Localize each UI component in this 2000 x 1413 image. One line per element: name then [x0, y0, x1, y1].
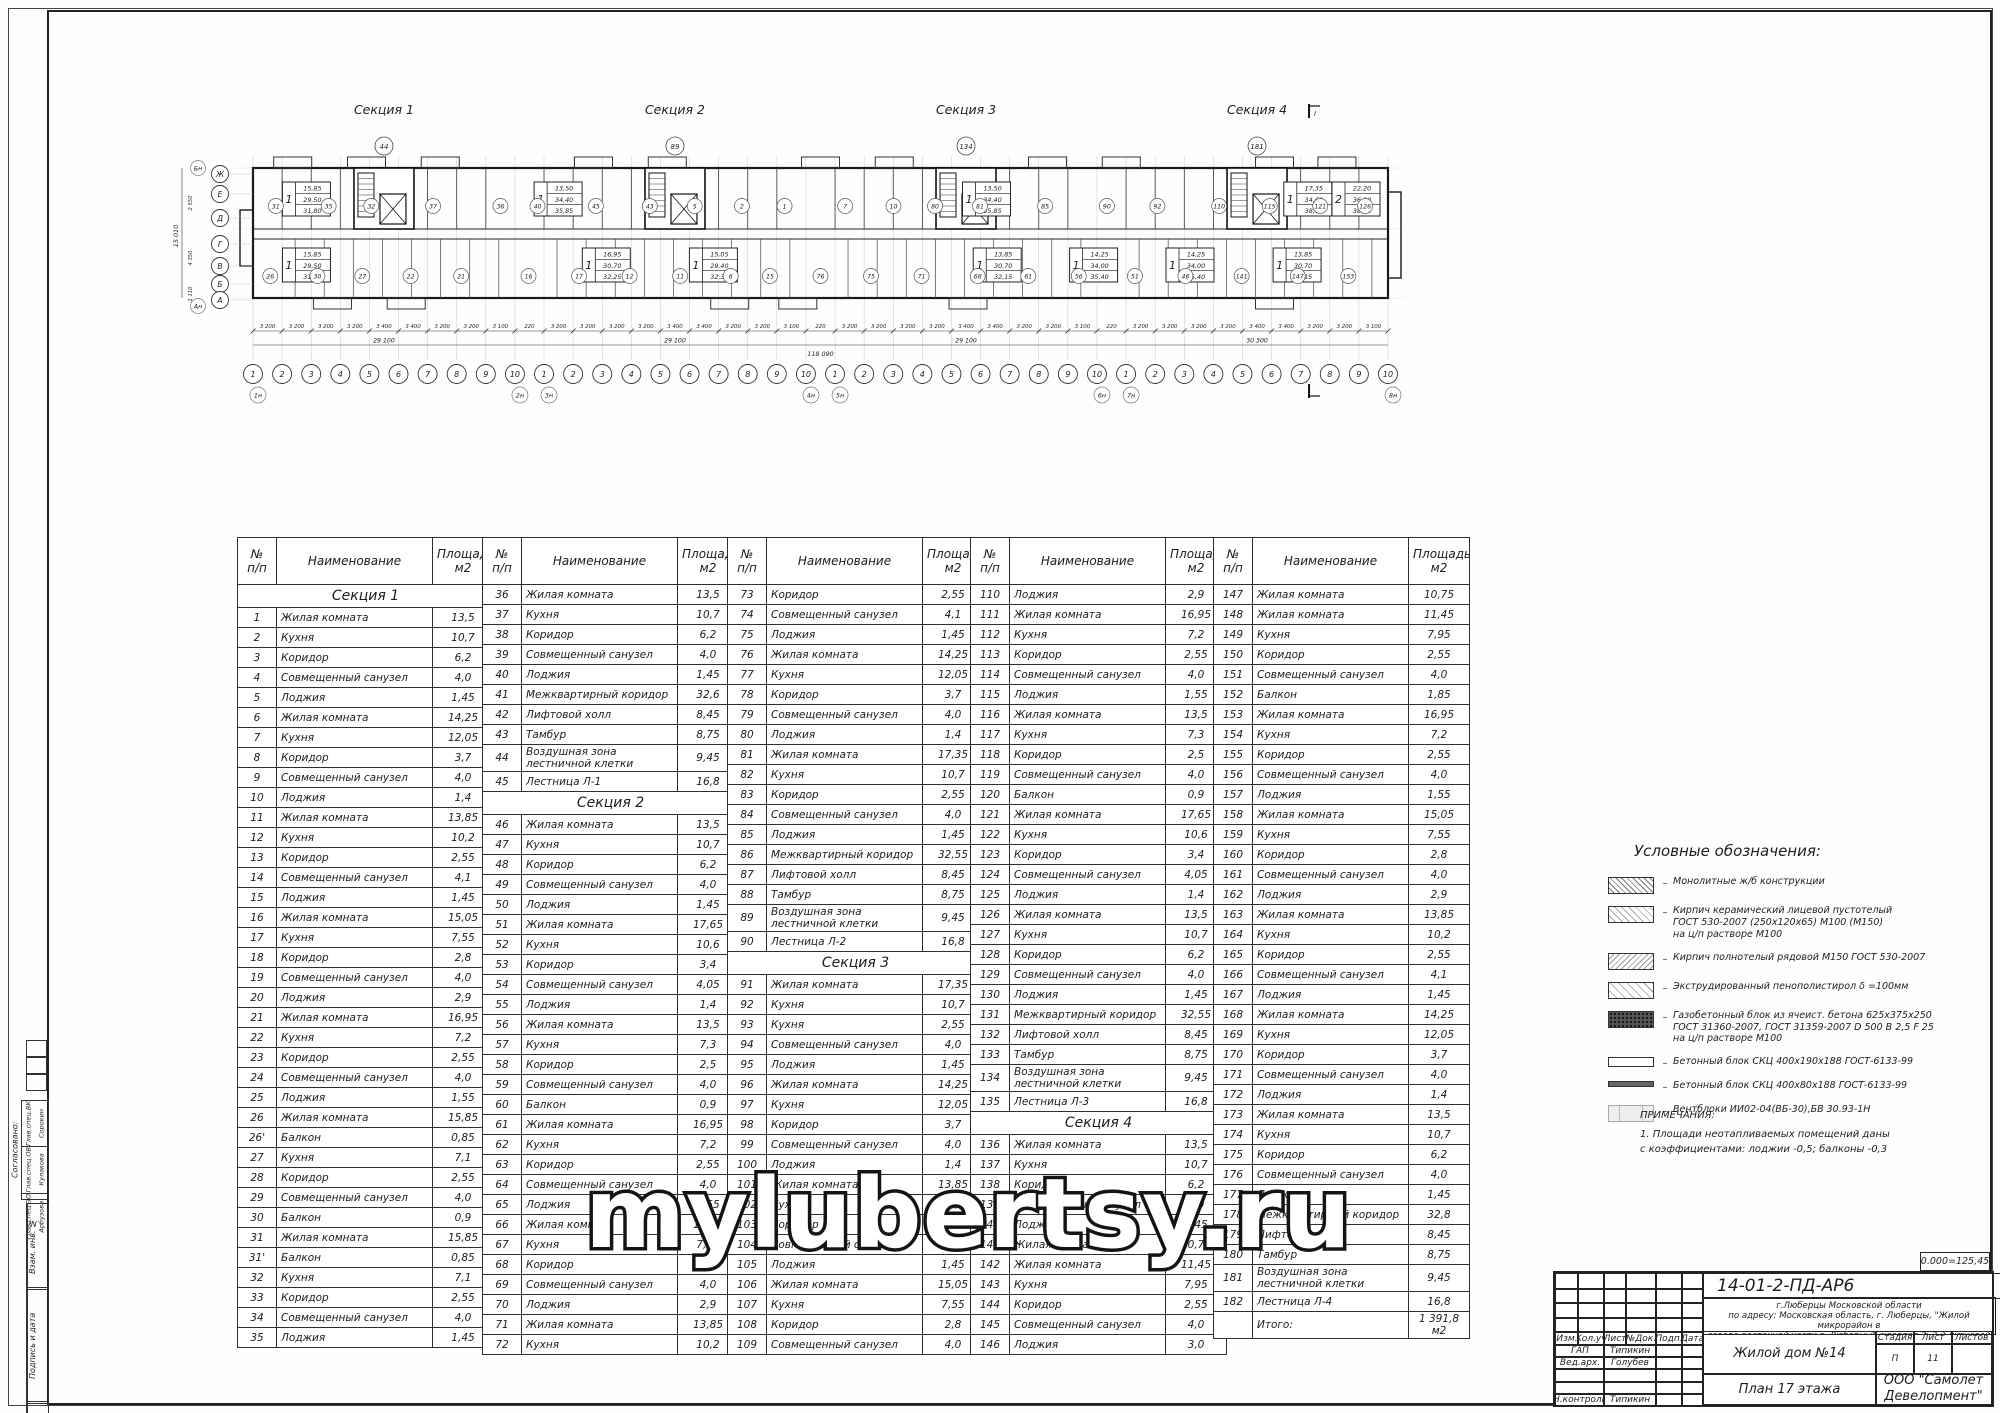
legend-title: Условные обозначения: — [1634, 842, 1978, 860]
table-row: 159Кухня7,55 — [1214, 825, 1470, 845]
table-row: 63Коридор2,55 — [483, 1155, 739, 1175]
svg-text:5н: 5н — [836, 392, 844, 400]
room-area: 1,55 — [1409, 785, 1470, 805]
table-row: 125Лоджия1,4 — [971, 885, 1227, 905]
room-name: Воздушная зона лестничной клетки — [522, 745, 678, 772]
row-number: 69 — [483, 1275, 522, 1295]
table-row: 37Кухня10,7 — [483, 605, 739, 625]
table-row: 69Совмещенный санузел4,0 — [483, 1275, 739, 1295]
room-name: Лоджия — [1010, 985, 1166, 1005]
room-name: Коридор — [277, 848, 433, 868]
room-name: Совмещенный санузел — [767, 1035, 923, 1055]
agree-entry: Глав.спец.ВК — [22, 1101, 35, 1146]
table-row: 43Тамбур8,75 — [483, 725, 739, 745]
row-number: 113 — [971, 645, 1010, 665]
svg-text:8: 8 — [1036, 370, 1041, 379]
svg-text:29,40: 29,40 — [710, 262, 728, 270]
room-name: Жилая комната — [1010, 605, 1166, 625]
svg-text:3 200: 3 200 — [1133, 324, 1149, 330]
row-number: 136 — [971, 1135, 1010, 1155]
svg-text:66: 66 — [974, 274, 982, 281]
svg-text:115: 115 — [1264, 204, 1276, 211]
svg-text:51: 51 — [1131, 274, 1139, 281]
svg-text:3 400: 3 400 — [696, 324, 712, 330]
row-number: 127 — [971, 925, 1010, 945]
table-row: 6Жилая комната14,25 — [238, 708, 494, 728]
agree-entry: Глав.спец.ОВ — [22, 1147, 35, 1193]
svg-text:3 100: 3 100 — [1075, 324, 1091, 330]
svg-text:3 200: 3 200 — [871, 324, 887, 330]
svg-text:56: 56 — [1075, 274, 1083, 281]
svg-text:7: 7 — [716, 370, 722, 379]
row-number: 27 — [238, 1148, 277, 1168]
table-header: Площадь, м2 — [1409, 538, 1470, 585]
room-name: Лоджия — [1010, 685, 1166, 705]
table-row: 157Лоджия1,55 — [1214, 785, 1470, 805]
table-row: 137Кухня10,7 — [971, 1155, 1227, 1175]
legend-item: –Бетонный блок СКЦ 400х190х188 ГОСТ-6133… — [1608, 1056, 1978, 1069]
table-row: 154Кухня7,2 — [1214, 725, 1470, 745]
svg-text:3: 3 — [309, 370, 314, 379]
room-name: Жилая комната — [767, 1175, 923, 1195]
room-name: Совмещенный санузел — [1253, 865, 1409, 885]
room-name: Совмещенный санузел — [1253, 965, 1409, 985]
svg-text:Секция 4: Секция 4 — [1227, 102, 1287, 117]
row-number: 71 — [483, 1315, 522, 1335]
agree-label: Согласовано: — [9, 1100, 21, 1200]
table-row: 99Совмещенный санузел4,0 — [728, 1135, 984, 1155]
row-number: 53 — [483, 955, 522, 975]
table-row: 124Совмещенный санузел4,05 — [971, 865, 1227, 885]
row-number: 121 — [971, 805, 1010, 825]
svg-text:8: 8 — [454, 370, 459, 379]
room-name: Итого: — [1253, 1312, 1409, 1339]
room-name: Коридор — [277, 948, 433, 968]
table-row: Секция 3 — [728, 952, 984, 975]
table-row: 60Балкон0,9 — [483, 1095, 739, 1115]
table-row: 83Коридор2,55 — [728, 785, 984, 805]
row-number: 153 — [1214, 705, 1253, 725]
svg-text:15: 15 — [766, 274, 774, 281]
row-number: 112 — [971, 625, 1010, 645]
table-row: 167Лоджия1,45 — [1214, 985, 1470, 1005]
svg-text:3 200: 3 200 — [464, 324, 480, 330]
svg-text:31,80: 31,80 — [303, 207, 321, 215]
svg-text:3 200: 3 200 — [842, 324, 858, 330]
room-area: 2,55 — [1409, 945, 1470, 965]
room-area: 7,95 — [1409, 625, 1470, 645]
svg-text:4: 4 — [629, 370, 634, 379]
row-number: 70 — [483, 1295, 522, 1315]
row-number: 62 — [483, 1135, 522, 1155]
room-name: Лифтовой холл — [767, 865, 923, 885]
room-area: 2,55 — [1409, 745, 1470, 765]
row-number: 102 — [728, 1195, 767, 1215]
table-row: 172Лоджия1,4 — [1214, 1085, 1470, 1105]
legend-text: Бетонный блок СКЦ 400х80х188 ГОСТ-6133-9… — [1673, 1080, 1907, 1092]
table-row: 131Межквартирный коридор32,55 — [971, 1005, 1227, 1025]
row-number: 100 — [728, 1155, 767, 1175]
table-row: 48Коридор6,2 — [483, 855, 739, 875]
svg-text:1: 1 — [1124, 370, 1129, 379]
row-number: 174 — [1214, 1125, 1253, 1145]
table-row: 155Коридор2,55 — [1214, 745, 1470, 765]
table-row: 19Совмещенный санузел4,0 — [238, 968, 494, 988]
room-name: Жилая комната — [767, 645, 923, 665]
room-name: Лоджия — [277, 888, 433, 908]
row-number: 77 — [728, 665, 767, 685]
svg-text:14,25: 14,25 — [1090, 251, 1108, 259]
table-row: 149Кухня7,95 — [1214, 625, 1470, 645]
room-name: Лоджия — [522, 895, 678, 915]
area-table-3: № п/пНаименованиеПлощадь, м273Коридор2,5… — [727, 537, 984, 1355]
room-name: Совмещенный санузел — [277, 868, 433, 888]
row-number: 32 — [238, 1268, 277, 1288]
table-row: 62Кухня7,2 — [483, 1135, 739, 1155]
room-name: Кухня — [1253, 1025, 1409, 1045]
svg-text:3 200: 3 200 — [1191, 324, 1207, 330]
room-name: Коридор — [1010, 1295, 1166, 1315]
table-row: 165Коридор2,55 — [1214, 945, 1470, 965]
room-name: Кухня — [1010, 625, 1166, 645]
table-row: 57Кухня7,3 — [483, 1035, 739, 1055]
table-row: 89Воздушная зона лестничной клетки9,45 — [728, 905, 984, 932]
legend-item: –Монолитные ж/б конструкции — [1608, 876, 1978, 894]
table-row: 133Тамбур8,75 — [971, 1045, 1227, 1065]
room-area: 1,4 — [1409, 1085, 1470, 1105]
svg-text:2: 2 — [862, 370, 867, 379]
svg-text:3 200: 3 200 — [929, 324, 945, 330]
room-name: Жилая комната — [1010, 1235, 1166, 1255]
svg-text:35,85: 35,85 — [555, 207, 573, 215]
svg-text:3 200: 3 200 — [1220, 324, 1236, 330]
table-row: 27Кухня7,1 — [238, 1148, 494, 1168]
stage-value — [1951, 1343, 1992, 1375]
svg-text:22,20: 22,20 — [1353, 185, 1371, 193]
room-name: Кухня — [767, 665, 923, 685]
table-row: 109Совмещенный санузел4,0 — [728, 1335, 984, 1355]
table-row: 26'Балкон0,85 — [238, 1128, 494, 1148]
svg-text:16: 16 — [525, 274, 533, 281]
row-number: 140 — [971, 1215, 1010, 1235]
room-name: Совмещенный санузел — [1010, 1195, 1166, 1215]
table-row: 98Коридор3,7 — [728, 1115, 984, 1135]
area-table-1: № п/пНаименованиеПлощадь, м2Секция 11Жил… — [237, 537, 494, 1348]
room-name: Лоджия — [522, 1295, 678, 1315]
legend-swatch-icon — [1608, 1011, 1654, 1028]
room-name: Тамбур — [522, 725, 678, 745]
row-number: 6 — [238, 708, 277, 728]
row-number: 156 — [1214, 765, 1253, 785]
legend-swatch-icon — [1608, 982, 1654, 999]
room-name: Кухня — [1010, 925, 1166, 945]
table-row: 15Лоджия1,45 — [238, 888, 494, 908]
room-name: Совмещенный санузел — [522, 975, 678, 995]
room-area: 4,0 — [1409, 1165, 1470, 1185]
svg-text:32,25: 32,25 — [603, 273, 621, 281]
row-number: 104 — [728, 1235, 767, 1255]
room-area: 4,0 — [1409, 1065, 1470, 1085]
row-number: 99 — [728, 1135, 767, 1155]
room-name: Совмещенный санузел — [522, 875, 678, 895]
room-name: Кухня — [277, 928, 433, 948]
table-row: 112Кухня7,2 — [971, 625, 1227, 645]
row-number: 125 — [971, 885, 1010, 905]
table-row: 66Жилая комната15,05 — [483, 1215, 739, 1235]
room-name: Лоджия — [277, 988, 433, 1008]
table-row: 26Жилая комната15,85 — [238, 1108, 494, 1128]
table-row: 2Кухня10,7 — [238, 628, 494, 648]
svg-text:3 200: 3 200 — [755, 324, 771, 330]
room-name: Кухня — [277, 628, 433, 648]
svg-text:118 090: 118 090 — [807, 350, 833, 358]
svg-text:3 200: 3 200 — [725, 324, 741, 330]
table-row: 107Кухня7,55 — [728, 1295, 984, 1315]
sheet-title: План 17 этажа — [1702, 1373, 1877, 1405]
table-row: 162Лоджия2,9 — [1214, 885, 1470, 905]
room-name: Лоджия — [277, 788, 433, 808]
room-name: Кухня — [522, 1335, 678, 1355]
room-name: Совмещенный санузел — [767, 805, 923, 825]
row-number: 128 — [971, 945, 1010, 965]
table-row: 45Лестница Л-116,8 — [483, 772, 739, 792]
table-row: 141Жилая комната10,75 — [971, 1235, 1227, 1255]
room-name: Жилая комната — [1253, 905, 1409, 925]
svg-text:3 400: 3 400 — [958, 324, 974, 330]
elevation-note: 0.000=125,45 — [1920, 1252, 1990, 1271]
svg-text:3 100: 3 100 — [493, 324, 509, 330]
row-number: 80 — [728, 725, 767, 745]
area-table-4: № п/пНаименованиеПлощадь, м2110Лоджия2,9… — [970, 537, 1227, 1355]
row-number: 25 — [238, 1088, 277, 1108]
room-name: Совмещенный санузел — [277, 968, 433, 988]
side-stamp-label: Взам. инв. № — [27, 1204, 37, 1289]
room-area: 1 391,8 м2 — [1409, 1312, 1470, 1339]
room-area: 4,0 — [1409, 765, 1470, 785]
table-row: 47Кухня10,7 — [483, 835, 739, 855]
room-name: Жилая комната — [277, 1228, 433, 1248]
table-row: 36Жилая комната13,5 — [483, 585, 739, 605]
svg-text:121: 121 — [1314, 204, 1326, 211]
row-number: 35 — [238, 1328, 277, 1348]
room-name: Кухня — [522, 1235, 678, 1255]
room-name: Совмещенный санузел — [522, 1075, 678, 1095]
row-number: 114 — [971, 665, 1010, 685]
row-number: 103 — [728, 1215, 767, 1235]
svg-text:10: 10 — [890, 204, 898, 211]
room-name: Межквартирный коридор — [1253, 1205, 1409, 1225]
room-name: Совмещенный санузел — [277, 768, 433, 788]
row-number: 144 — [971, 1295, 1010, 1315]
table-header: Наименование — [522, 538, 678, 585]
svg-text:6н: 6н — [1098, 392, 1106, 400]
table-row: 86Межквартирный коридор32,55 — [728, 845, 984, 865]
table-header: № п/п — [238, 538, 277, 585]
svg-text:13,50: 13,50 — [983, 185, 1001, 193]
room-name: Кухня — [522, 935, 678, 955]
room-area: 14,25 — [1409, 1005, 1470, 1025]
table-row: 110Лоджия2,9 — [971, 585, 1227, 605]
table-row: 29Совмещенный санузел4,0 — [238, 1188, 494, 1208]
row-number: 51 — [483, 915, 522, 935]
room-name: Коридор — [277, 1168, 433, 1188]
svg-text:30 300: 30 300 — [1246, 338, 1268, 345]
room-name: Жилая комната — [1010, 805, 1166, 825]
row-number: 145 — [971, 1315, 1010, 1335]
table-row: 64Совмещенный санузел4,0 — [483, 1175, 739, 1195]
table-row: 104Совмещенный санузел4,1 — [728, 1235, 984, 1255]
table-row: 7Кухня12,05 — [238, 728, 494, 748]
table-row: 31'Балкон0,85 — [238, 1248, 494, 1268]
room-name: Жилая комната — [767, 1275, 923, 1295]
table-row: Итого:1 391,8 м2 — [1214, 1312, 1470, 1339]
agree-block: Согласовано:Глав.спец.ВКСорокинГлав.спец… — [9, 1100, 47, 1200]
room-area: 10,2 — [1409, 925, 1470, 945]
svg-text:75: 75 — [867, 274, 875, 281]
svg-text:Ж: Ж — [215, 170, 225, 179]
room-name: Коридор — [1010, 945, 1166, 965]
table-row: 68Коридор2,8 — [483, 1255, 739, 1275]
room-name: Жилая комната — [1253, 605, 1409, 625]
svg-text:4 350: 4 350 — [188, 250, 194, 266]
row-number: 131 — [971, 1005, 1010, 1025]
row-number: 58 — [483, 1055, 522, 1075]
room-name: Совмещенный санузел — [522, 1275, 678, 1295]
svg-text:3 200: 3 200 — [1046, 324, 1062, 330]
room-area: 7,2 — [1409, 725, 1470, 745]
row-number: 172 — [1214, 1085, 1253, 1105]
svg-text:4: 4 — [338, 370, 343, 379]
table-row: 182Лестница Л-416,8 — [1214, 1292, 1470, 1312]
room-name: Жилая комната — [1010, 705, 1166, 725]
row-number: 89 — [728, 905, 767, 932]
table-row: 128Коридор6,2 — [971, 945, 1227, 965]
table-row: 97Кухня12,05 — [728, 1095, 984, 1115]
room-name: Кухня — [767, 1095, 923, 1115]
row-number: 159 — [1214, 825, 1253, 845]
room-area: 7,55 — [1409, 825, 1470, 845]
svg-text:35,40: 35,40 — [1090, 273, 1108, 281]
floor-plan: 4489134181115,8529,5031,80113,5034,4035,… — [168, 98, 1418, 408]
svg-text:220: 220 — [1106, 324, 1117, 330]
table-row: 53Коридор3,4 — [483, 955, 739, 975]
room-name: Кухня — [1010, 825, 1166, 845]
svg-text:1: 1 — [585, 259, 592, 272]
svg-text:45: 45 — [592, 204, 600, 211]
row-axis-letters: ЖЕДГВБАБнАн — [191, 161, 254, 314]
table-row: 156Совмещенный санузел4,0 — [1214, 765, 1470, 785]
svg-text:В: В — [217, 262, 222, 271]
room-name: Коридор — [767, 1315, 923, 1335]
table-row: 54Совмещенный санузел4,05 — [483, 975, 739, 995]
svg-text:5: 5 — [658, 370, 663, 379]
room-name: Совмещенный санузел — [277, 1188, 433, 1208]
table-row: 58Коридор2,5 — [483, 1055, 739, 1075]
room-name: Кухня — [1253, 1125, 1409, 1145]
table-row: 140Лоджия1,45 — [971, 1215, 1227, 1235]
svg-text:3н: 3н — [545, 392, 553, 400]
room-name: Лоджия — [1253, 885, 1409, 905]
table-row: 143Кухня7,95 — [971, 1275, 1227, 1295]
legend-swatch-icon — [1608, 1081, 1654, 1087]
svg-text:134: 134 — [959, 143, 972, 151]
row-number: 76 — [728, 645, 767, 665]
legend-text: Экструдированный пенополистирол δ =100мм — [1673, 981, 1908, 993]
row-number: 41 — [483, 685, 522, 705]
room-name: Совмещенный санузел — [1010, 865, 1166, 885]
row-number: 130 — [971, 985, 1010, 1005]
room-name: Жилая комната — [522, 915, 678, 935]
svg-text:17,35: 17,35 — [1305, 185, 1323, 193]
row-number: 148 — [1214, 605, 1253, 625]
room-name: Коридор — [1253, 945, 1409, 965]
svg-text:61: 61 — [1024, 274, 1032, 281]
room-area: 11,45 — [1409, 605, 1470, 625]
svg-text:3 200: 3 200 — [260, 324, 276, 330]
table-row: 13Коридор2,55 — [238, 848, 494, 868]
room-area: 15,05 — [1409, 805, 1470, 825]
table-row: 105Лоджия1,45 — [728, 1255, 984, 1275]
svg-text:29 100: 29 100 — [955, 338, 977, 345]
room-name: Совмещенный санузел — [767, 1235, 923, 1255]
table-row: 177Лоджия1,45 — [1214, 1185, 1470, 1205]
room-name: Жилая комната — [277, 1108, 433, 1128]
room-area: 4,1 — [1409, 965, 1470, 985]
row-number: 155 — [1214, 745, 1253, 765]
svg-text:3: 3 — [1182, 370, 1187, 379]
room-name: Лоджия — [522, 995, 678, 1015]
row-number: 147 — [1214, 585, 1253, 605]
room-name: Кухня — [522, 1135, 678, 1155]
row-number: 158 — [1214, 805, 1253, 825]
table-row: 81Жилая комната17,35 — [728, 745, 984, 765]
row-number: 55 — [483, 995, 522, 1015]
row-number: 38 — [483, 625, 522, 645]
svg-text:2: 2 — [1335, 193, 1342, 206]
table-row: 79Совмещенный санузел4,0 — [728, 705, 984, 725]
room-name: Жилая комната — [277, 708, 433, 728]
table-row: 40Лоджия1,45 — [483, 665, 739, 685]
table-row: 175Коридор6,2 — [1214, 1145, 1470, 1165]
section-header: Секция 3 — [728, 952, 984, 975]
svg-text:36: 36 — [497, 204, 505, 211]
svg-text:3 400: 3 400 — [1278, 324, 1294, 330]
row-number: 9 — [238, 768, 277, 788]
svg-text:11: 11 — [676, 274, 684, 281]
svg-text:Ан: Ан — [193, 303, 203, 311]
row-number: 34 — [238, 1308, 277, 1328]
row-number: 135 — [971, 1092, 1010, 1112]
table-row: 9Совмещенный санузел4,0 — [238, 768, 494, 788]
row-number: 5 — [238, 688, 277, 708]
note-line: 1. Площади неотапливаемых помещений даны — [1640, 1127, 1980, 1142]
svg-text:22: 22 — [407, 274, 415, 281]
document-number: 14-01-2-ПД-АР6 — [1702, 1273, 2000, 1299]
room-name: Совмещенный санузел — [1253, 665, 1409, 685]
room-area: 1,85 — [1409, 685, 1470, 705]
row-number: 29 — [238, 1188, 277, 1208]
svg-text:3 200: 3 200 — [638, 324, 654, 330]
room-name: Тамбур — [767, 885, 923, 905]
row-number: 17 — [238, 928, 277, 948]
room-name: Коридор — [522, 1255, 678, 1275]
room-name: Совмещенный санузел — [767, 1135, 923, 1155]
svg-text:1: 1 — [1287, 193, 1294, 206]
room-name: Кухня — [767, 765, 923, 785]
svg-text:5: 5 — [367, 370, 372, 379]
table-row: 151Совмещенный санузел4,0 — [1214, 665, 1470, 685]
room-name: Совмещенный санузел — [277, 668, 433, 688]
